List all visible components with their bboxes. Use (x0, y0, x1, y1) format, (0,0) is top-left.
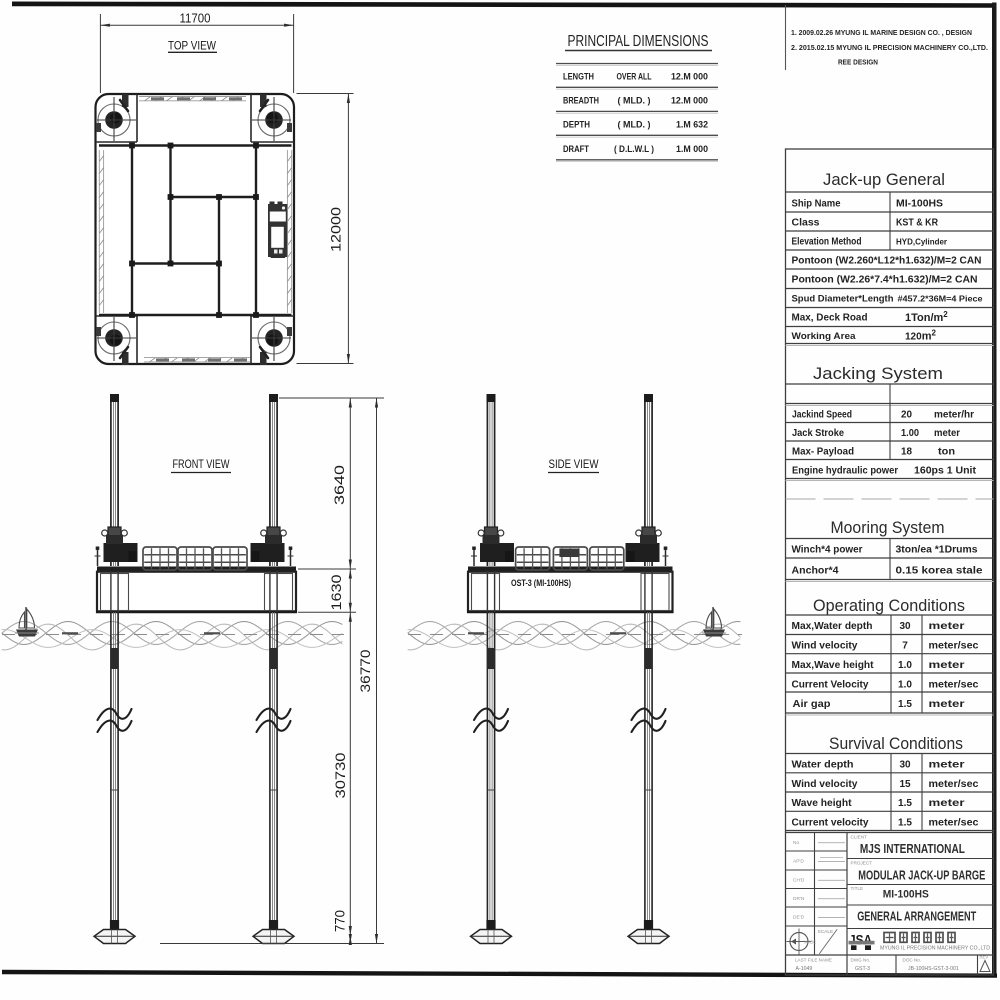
svg-text:1Ton/m2: 1Ton/m2 (905, 310, 948, 324)
svg-text:JSA: JSA (849, 932, 872, 948)
svg-text:A-1049: A-1049 (796, 966, 813, 972)
svg-text:Wind velocity: Wind velocity (792, 641, 858, 652)
svg-text:DWG No.: DWG No. (851, 958, 871, 963)
svg-text:Max, Deck Road: Max, Deck Road (792, 313, 868, 324)
svg-text:Air gap: Air gap (793, 699, 831, 710)
svg-text:Pontoon (W2.260*L12*h1.632)/M: Pontoon (W2.260*L12*h1.632)/M=2 CAN (792, 256, 982, 267)
svg-text:Spud Diameter*Length: Spud Diameter*Length (792, 294, 894, 305)
svg-text:12.M 000: 12.M 000 (671, 96, 708, 107)
svg-text:Working Area: Working Area (792, 331, 857, 342)
svg-text:36770: 36770 (358, 650, 373, 693)
svg-text:CH'D: CH'D (793, 877, 805, 883)
svg-text:15: 15 (899, 779, 911, 790)
svg-text:18: 18 (901, 447, 912, 458)
svg-text:meter/hr: meter/hr (934, 410, 974, 421)
svg-text:Jack Stroke: Jack Stroke (792, 428, 844, 439)
svg-text:SCALE: SCALE (818, 929, 834, 935)
svg-text:Survival Conditions: Survival Conditions (829, 735, 963, 753)
svg-text:OVER ALL: OVER ALL (617, 72, 652, 83)
svg-text:3ton/ea *1Drums: 3ton/ea *1Drums (896, 545, 978, 556)
svg-text:( MLD. ): ( MLD. ) (618, 120, 651, 131)
svg-text:Wind velocity: Wind velocity (792, 779, 858, 790)
svg-text:1.0: 1.0 (898, 680, 912, 691)
svg-text:3640: 3640 (332, 465, 347, 505)
svg-text:1. 2009.02.26 MYUNG IL MARINE: 1. 2009.02.26 MYUNG IL MARINE DESIGN CO.… (791, 28, 972, 37)
svg-text:7: 7 (902, 641, 908, 652)
svg-text:0.15 korea stale: 0.15 korea stale (896, 566, 984, 577)
svg-text:Max- Payload: Max- Payload (792, 447, 854, 458)
svg-text:Jack-up General: Jack-up General (823, 170, 945, 189)
svg-text:Operating Conditions: Operating Conditions (813, 597, 965, 615)
svg-text:CLIENT: CLIENT (851, 835, 868, 840)
svg-text:REE DESIGN: REE DESIGN (838, 58, 878, 67)
svg-text:meter/sec: meter/sec (929, 641, 979, 652)
svg-text:770: 770 (333, 910, 348, 932)
svg-text:DOC No.: DOC No. (903, 958, 922, 963)
svg-text:BREADTH: BREADTH (563, 96, 599, 107)
svg-text:( D.L.W.L ): ( D.L.W.L ) (614, 144, 654, 155)
svg-text:Current Velocity: Current Velocity (792, 680, 869, 691)
svg-text:Engine hydraulic power: Engine hydraulic power (792, 466, 898, 477)
svg-text:GENERAL ARRANGEMENT: GENERAL ARRANGEMENT (857, 910, 976, 924)
svg-text:1.0: 1.0 (898, 660, 912, 671)
svg-text:meter/sec: meter/sec (929, 779, 979, 790)
svg-text:Max,Water depth: Max,Water depth (792, 621, 873, 632)
svg-text:meter: meter (929, 699, 965, 710)
svg-text:REV: REV (980, 955, 989, 960)
svg-text:GST-3: GST-3 (855, 966, 870, 972)
svg-text:OST-3 (MI-100HS): OST-3 (MI-100HS) (511, 578, 571, 588)
svg-text:meter: meter (929, 760, 965, 771)
svg-text:30730: 30730 (333, 753, 348, 799)
svg-text:Winch*4 power: Winch*4 power (792, 545, 863, 556)
svg-text:TITLE: TITLE (851, 886, 864, 891)
svg-text:160ps 1 Unit: 160ps 1 Unit (914, 466, 977, 477)
svg-text:PROJECT: PROJECT (851, 861, 873, 866)
svg-text:2. 2015.02.15 MYUNG IL PRECIS: 2. 2015.02.15 MYUNG IL PRECISION MACHINE… (791, 43, 988, 52)
svg-text:TOP VIEW: TOP VIEW (168, 41, 216, 53)
svg-text:DR'N: DR'N (793, 896, 805, 902)
svg-text:PRINCIPAL DIMENSIONS: PRINCIPAL DIMENSIONS (568, 33, 709, 50)
svg-text:AP'D: AP'D (793, 859, 804, 865)
svg-text:Ship Name: Ship Name (792, 199, 841, 210)
svg-text:1.5: 1.5 (898, 817, 912, 828)
svg-text:LAST FILE NAME: LAST FILE NAME (795, 958, 832, 963)
svg-text:Jacking System: Jacking System (813, 364, 943, 383)
svg-text:Mooring System: Mooring System (831, 519, 945, 537)
svg-text:MADE: MADE (804, 940, 816, 945)
svg-text:FRONT VIEW: FRONT VIEW (173, 459, 230, 471)
svg-text:Class: Class (792, 218, 820, 229)
svg-text:MI-100HS: MI-100HS (896, 199, 943, 210)
svg-text:30: 30 (899, 621, 911, 632)
svg-text:MYUNG IL PRECISION MACHINERY C: MYUNG IL PRECISION MACHINERY CO.,LTD (880, 946, 990, 952)
svg-text:ton: ton (938, 447, 955, 458)
svg-text:Current velocity: Current velocity (792, 817, 869, 828)
svg-text:SIDE VIEW: SIDE VIEW (549, 459, 599, 471)
svg-text:1.5: 1.5 (898, 798, 912, 809)
svg-text:KST & KR: KST & KR (896, 218, 939, 229)
svg-text:JB-100HS-GST-3-001: JB-100HS-GST-3-001 (908, 966, 959, 972)
svg-text:MJS INTERNATIONAL: MJS INTERNATIONAL (860, 841, 965, 856)
svg-text:LENGTH: LENGTH (563, 72, 594, 83)
svg-text:meter/sec: meter/sec (929, 680, 979, 691)
svg-text:MI-100HS: MI-100HS (883, 888, 929, 900)
svg-text:1.M 632: 1.M 632 (676, 120, 708, 131)
svg-text:( MLD. ): ( MLD. ) (618, 96, 651, 107)
svg-text:12000: 12000 (329, 207, 344, 252)
svg-text:DEPTH: DEPTH (563, 120, 590, 131)
svg-text:20: 20 (901, 410, 912, 421)
svg-text:meter: meter (929, 621, 965, 632)
svg-text:1.00: 1.00 (901, 428, 919, 439)
svg-text:Jackind Speed: Jackind Speed (792, 410, 852, 421)
svg-text:Anchor*4: Anchor*4 (792, 566, 839, 577)
svg-text:MODULAR JACK-UP BARGE: MODULAR JACK-UP BARGE (858, 868, 985, 883)
svg-text:12.M 000: 12.M 000 (671, 72, 708, 83)
svg-text:Elevation Method: Elevation Method (792, 237, 862, 248)
svg-text:No: No (793, 840, 799, 846)
svg-text:HYD,Cylinder: HYD,Cylinder (896, 237, 948, 247)
svg-text:meter: meter (929, 660, 965, 671)
svg-text:DE'D: DE'D (793, 915, 805, 921)
svg-text:Water depth: Water depth (792, 760, 854, 771)
svg-text:Pontoon (W2.26*7.4*h1.632)/M=: Pontoon (W2.26*7.4*h1.632)/M=2 CAN (792, 275, 978, 286)
svg-text:meter/sec: meter/sec (929, 817, 979, 828)
svg-text:Max,Wave height: Max,Wave height (792, 660, 875, 671)
svg-text:meter: meter (929, 798, 965, 809)
svg-text:DRAFT: DRAFT (563, 144, 589, 155)
svg-text:1.M 000: 1.M 000 (676, 144, 708, 155)
svg-text:1.5: 1.5 (898, 699, 912, 710)
svg-text:#457.2*36M=4 Piece: #457.2*36M=4 Piece (898, 295, 984, 304)
svg-text:30: 30 (899, 760, 911, 771)
svg-text:11700: 11700 (180, 10, 211, 25)
svg-text:Wave height: Wave height (792, 798, 853, 809)
svg-text:meter: meter (934, 428, 960, 439)
svg-text:1630: 1630 (329, 575, 344, 611)
